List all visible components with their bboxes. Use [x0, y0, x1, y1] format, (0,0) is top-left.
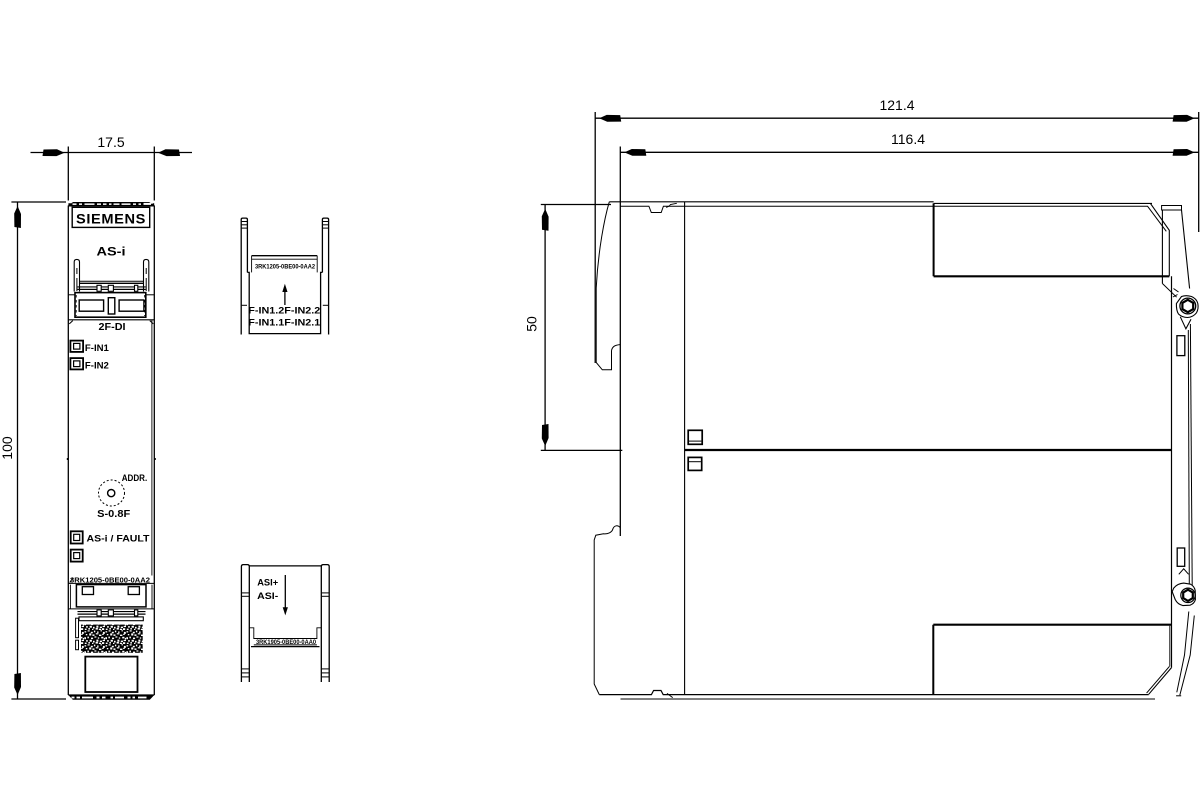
svg-text:3RK1905-0BE00-0AA0: 3RK1905-0BE00-0AA0	[256, 639, 316, 646]
svg-text:S-0.8F: S-0.8F	[97, 509, 130, 520]
svg-text:17.5: 17.5	[97, 134, 124, 150]
svg-text:F-IN1: F-IN1	[85, 343, 110, 354]
svg-text:ADDR.: ADDR.	[122, 473, 148, 483]
svg-text:116.4: 116.4	[891, 131, 925, 147]
svg-text:AS-i: AS-i	[97, 245, 126, 259]
svg-text:100: 100	[0, 436, 15, 460]
svg-text:ASI-: ASI-	[257, 591, 278, 602]
svg-text:AS-i / FAULT: AS-i / FAULT	[87, 534, 151, 544]
svg-text:3RK1205-0BE00-0AA2: 3RK1205-0BE00-0AA2	[255, 264, 315, 271]
svg-text:121.4: 121.4	[879, 97, 914, 113]
svg-text:50: 50	[524, 316, 540, 332]
svg-text:F-IN2: F-IN2	[85, 360, 109, 371]
svg-text:F-IN1.1F-IN2.1: F-IN1.1F-IN2.1	[248, 318, 321, 329]
svg-text:ASI+: ASI+	[257, 577, 278, 588]
svg-text:2F-DI: 2F-DI	[99, 322, 126, 333]
svg-text:SIEMENS: SIEMENS	[76, 212, 146, 228]
svg-text:F-IN1.2F-IN2.2: F-IN1.2F-IN2.2	[248, 306, 320, 317]
